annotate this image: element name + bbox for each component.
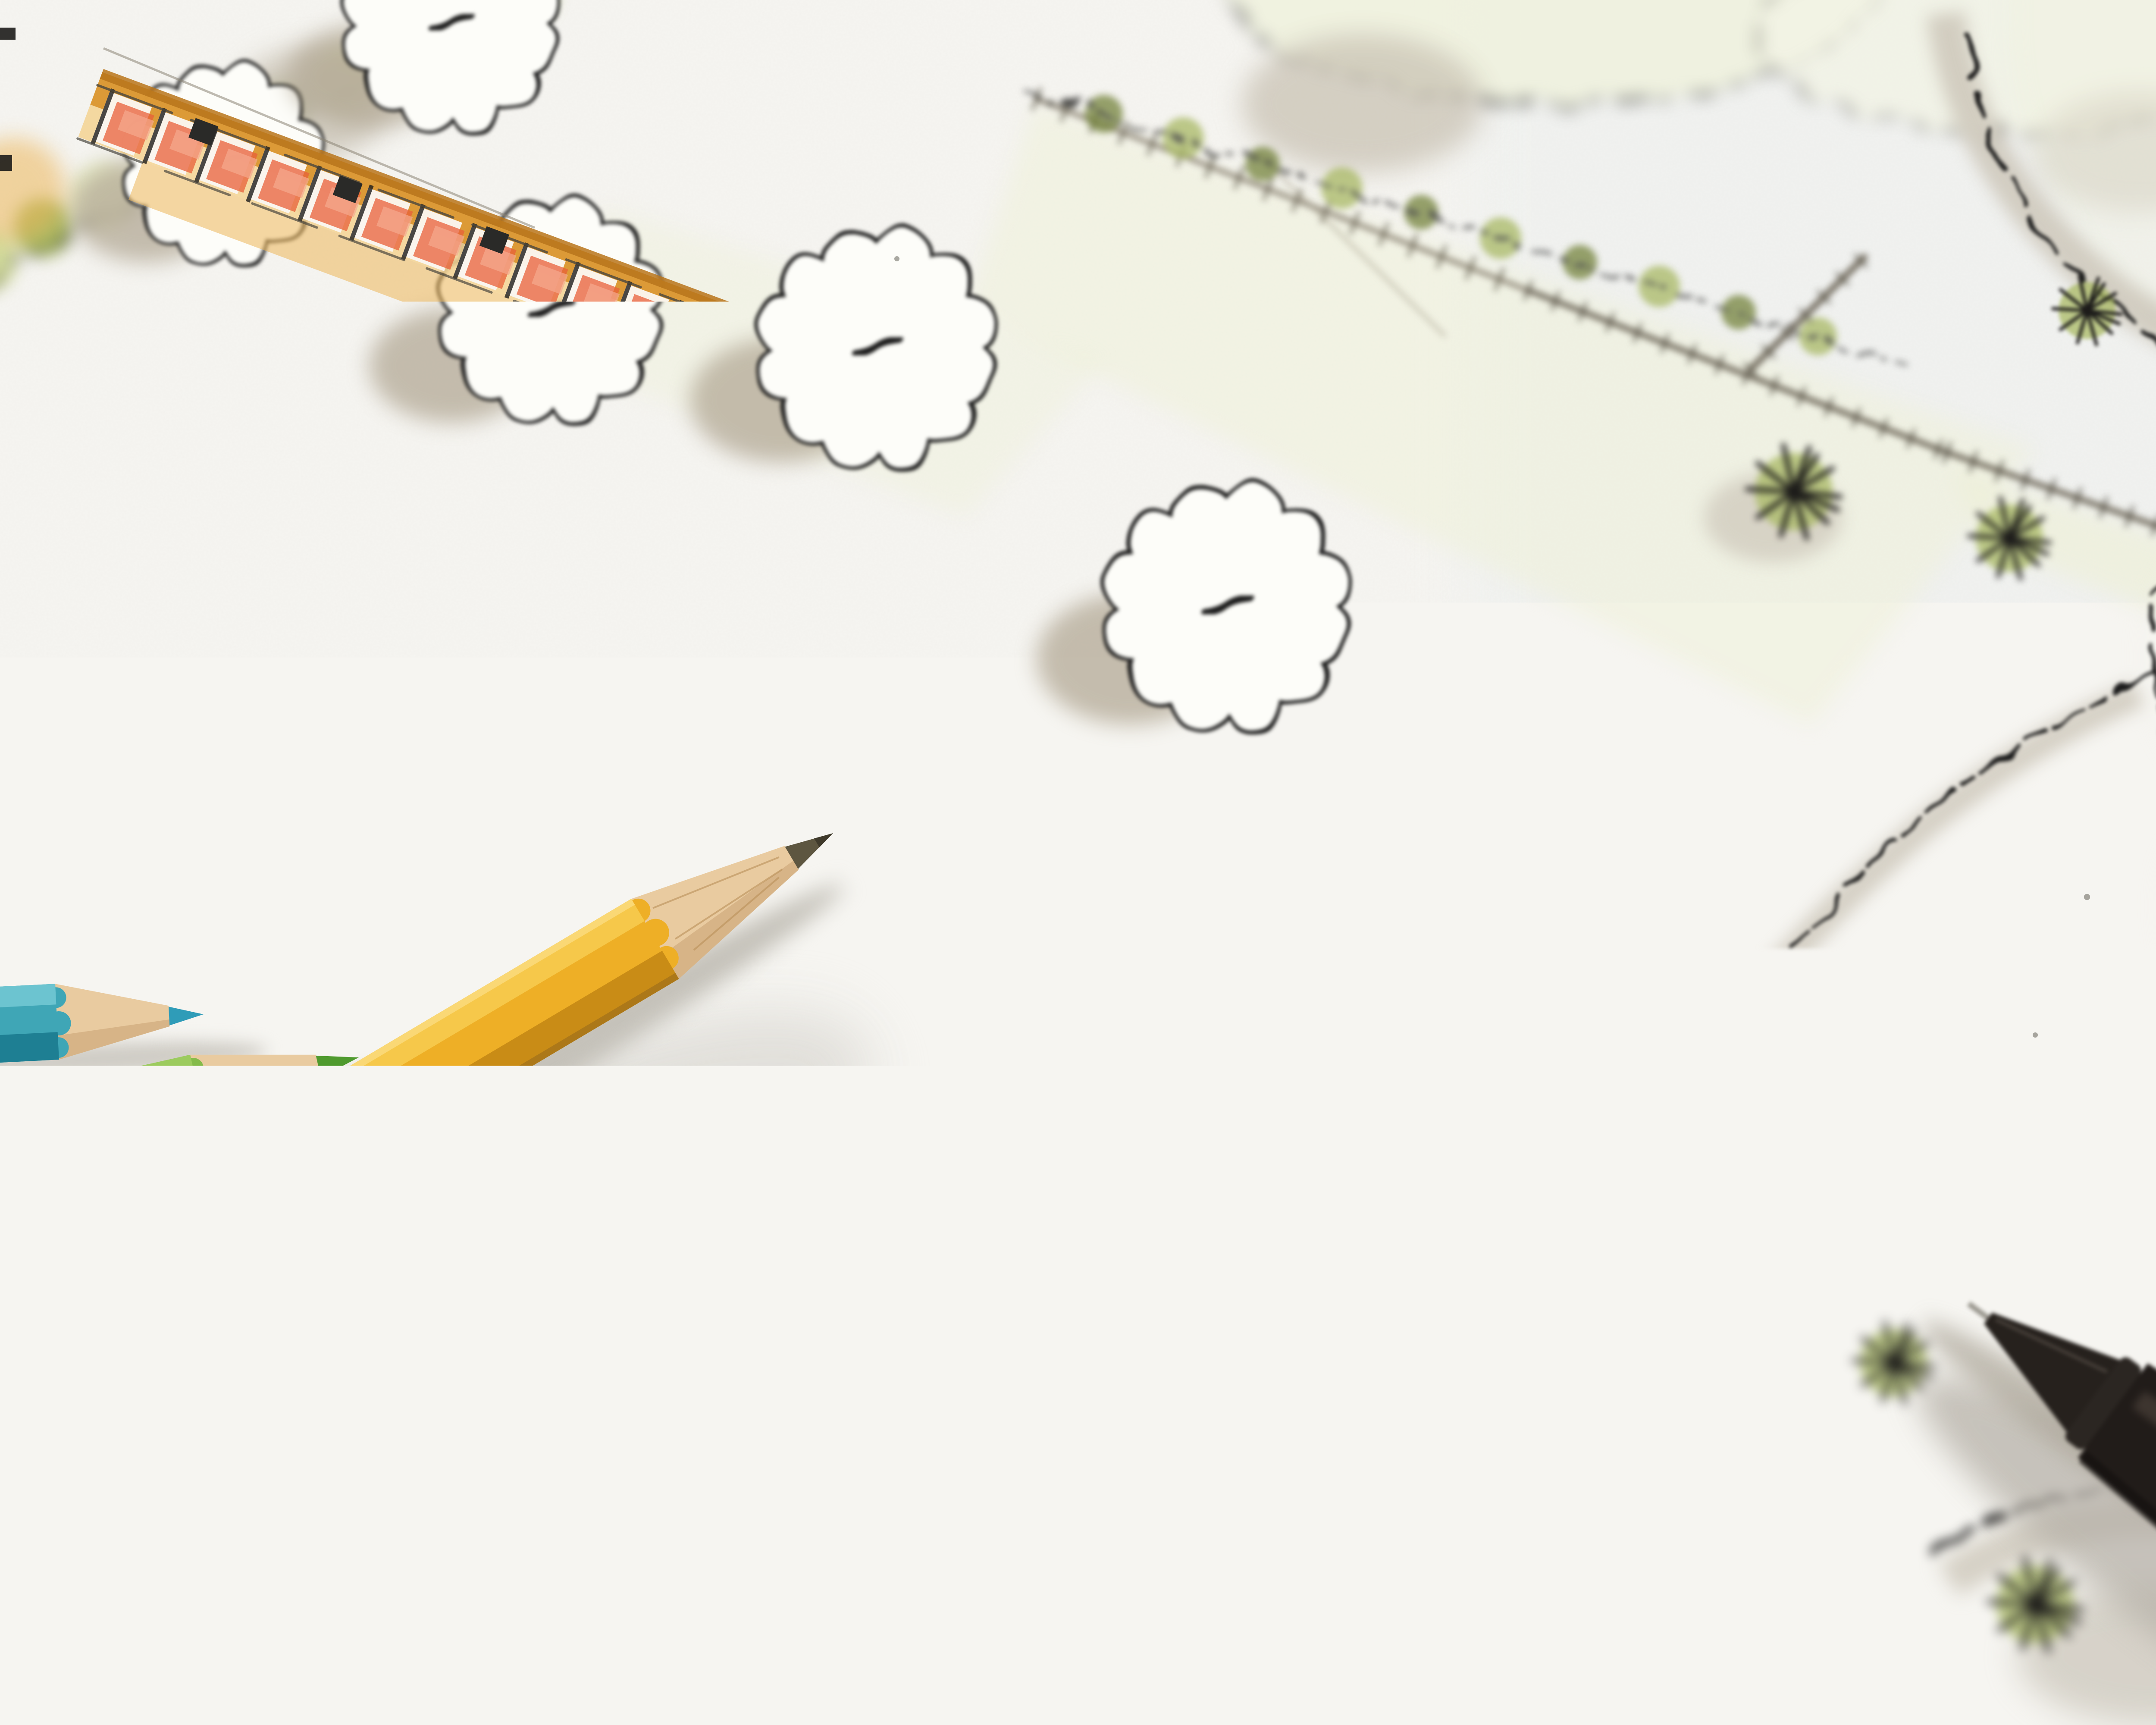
sketch-photo: Co oo Co o: [0, 0, 2156, 1725]
photo-of-garden-plan: Co oo Co o: [0, 0, 2156, 1725]
